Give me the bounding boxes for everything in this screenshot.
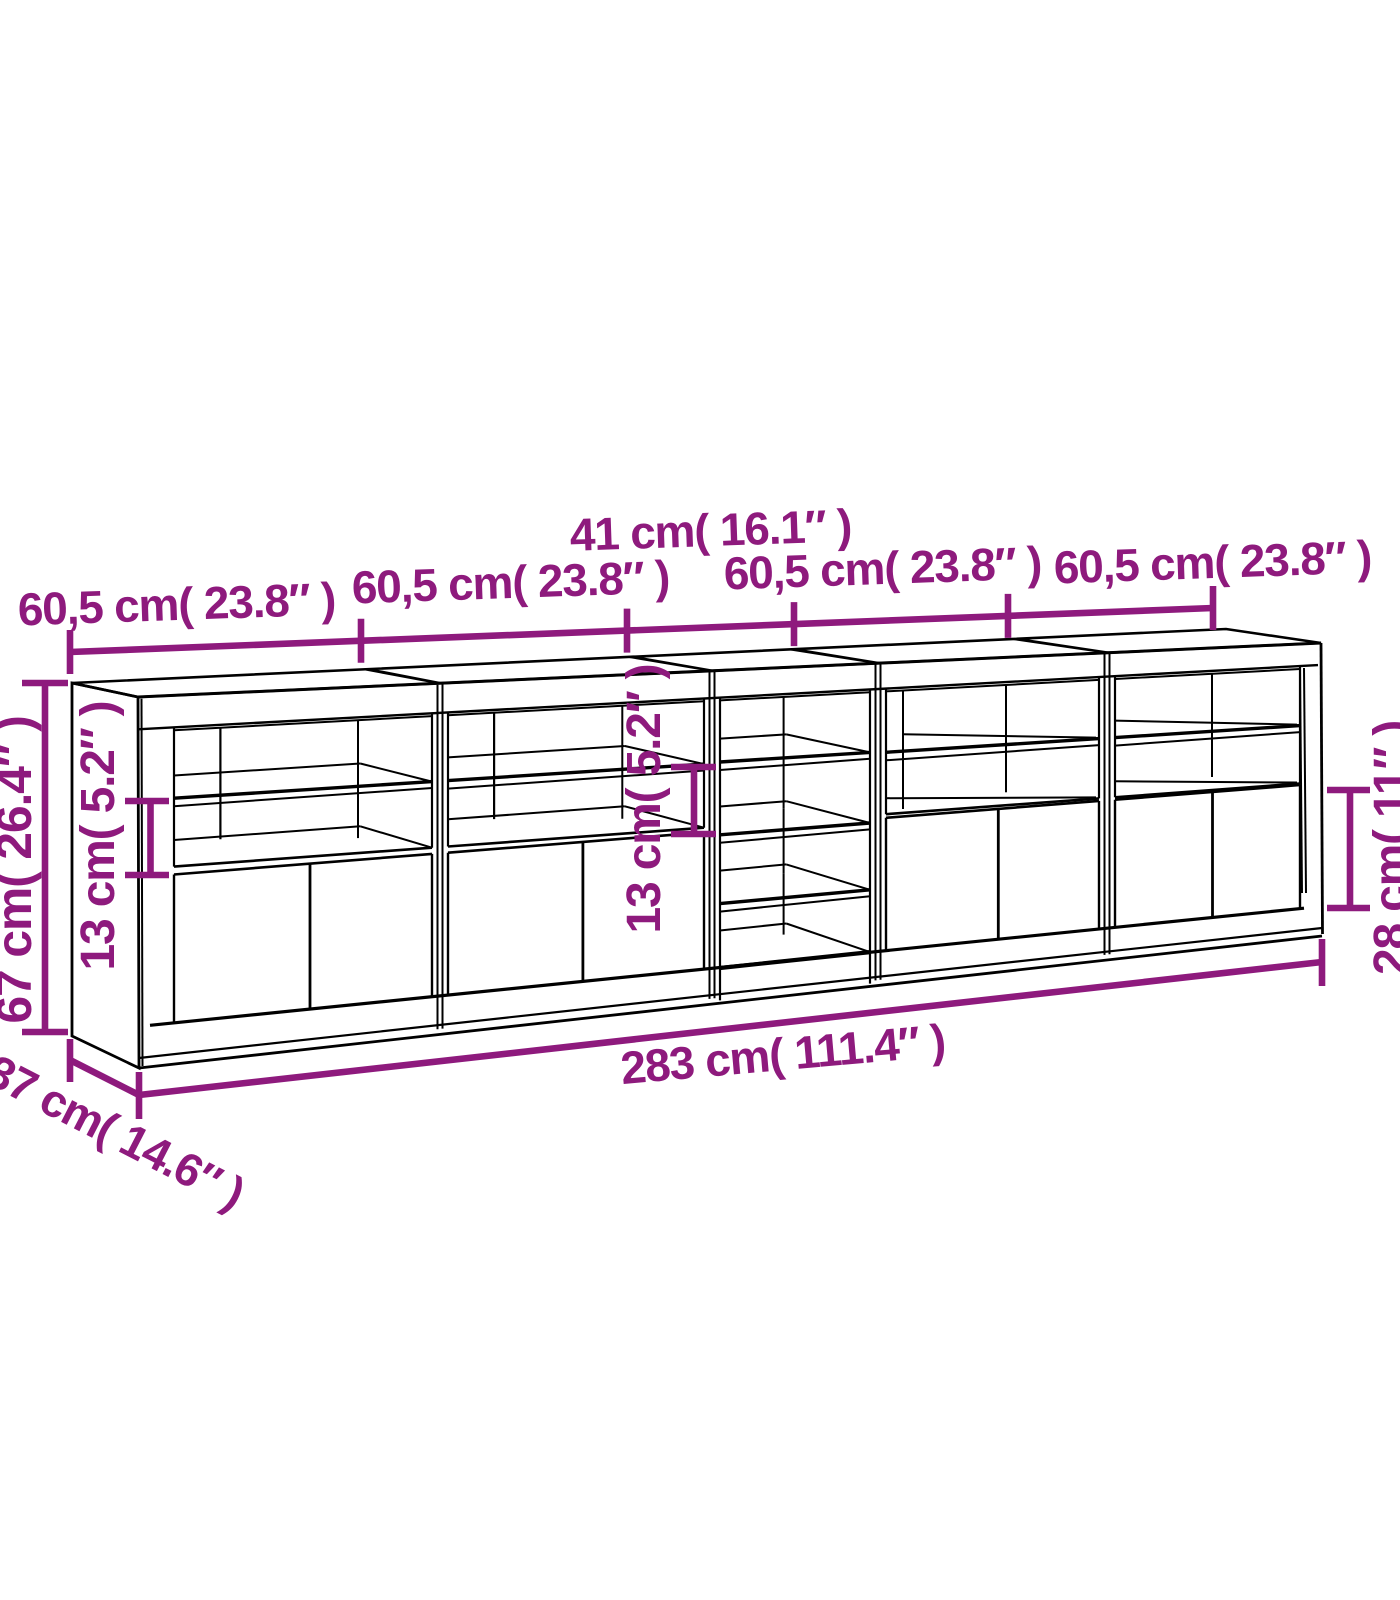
- svg-text:60,5 cm( 23.8″ ): 60,5 cm( 23.8″ ): [1053, 530, 1372, 593]
- svg-text:28 cm( 11″ ): 28 cm( 11″ ): [1365, 721, 1400, 975]
- svg-text:13 cm( 5.2″ ): 13 cm( 5.2″ ): [618, 665, 671, 934]
- svg-text:13 cm( 5.2″ ): 13 cm( 5.2″ ): [72, 702, 125, 971]
- svg-text:60,5 cm( 23.8″ ): 60,5 cm( 23.8″ ): [723, 536, 1042, 599]
- svg-text:60,5 cm( 23.8″ ): 60,5 cm( 23.8″ ): [17, 572, 336, 635]
- svg-text:67 cm( 26.4″ ): 67 cm( 26.4″ ): [0, 716, 42, 1023]
- svg-text:60,5 cm( 23.8″ ): 60,5 cm( 23.8″ ): [351, 550, 670, 613]
